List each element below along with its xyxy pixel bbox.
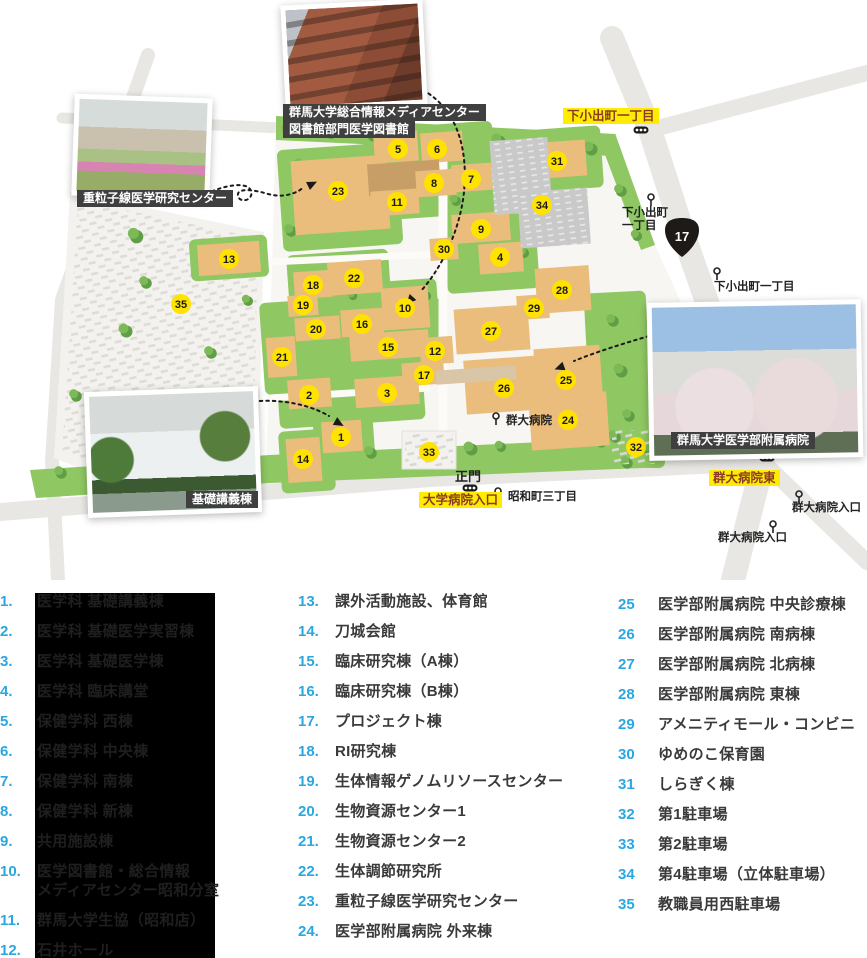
- svg-text:下小出町一丁目: 下小出町一丁目: [714, 279, 795, 293]
- legend-item-label: 臨床研究棟（B棟）: [335, 682, 469, 701]
- traffic-light-icon: [463, 485, 478, 492]
- map-marker-21: 21: [272, 347, 292, 367]
- map-marker-23: 23: [328, 181, 348, 201]
- svg-text:18: 18: [307, 280, 319, 292]
- svg-text:5: 5: [395, 144, 401, 156]
- legend-item-19: 19.生体情報ゲノムリソースセンター: [298, 772, 610, 791]
- svg-text:34: 34: [536, 200, 549, 212]
- map-marker-15: 15: [378, 337, 398, 357]
- svg-text:23: 23: [332, 186, 344, 198]
- legend-item-label: 教職員用西駐車場: [658, 895, 780, 914]
- svg-text:15: 15: [382, 342, 394, 354]
- legend-item-number: 26: [618, 625, 658, 644]
- legend-item-35: 35教職員用西駐車場: [618, 895, 867, 914]
- legend-item-23: 23.重粒子線医学研究センター: [298, 892, 610, 911]
- map-marker-17: 17: [414, 365, 434, 385]
- legend-item-number: 1.: [0, 592, 37, 611]
- legend-item-7: 7.保健学科 南棟: [0, 772, 292, 791]
- building-legend: 1.医学科 基礎講義棟2.医学科 基礎医学実習棟3.医学科 基礎医学棟4.医学科…: [0, 586, 867, 958]
- legend-item-number: 18.: [298, 742, 335, 761]
- legend-item-number: 3.: [0, 652, 37, 671]
- legend-item-number: 14.: [298, 622, 335, 641]
- svg-text:33: 33: [423, 447, 435, 459]
- legend-item-11: 11.群馬大学生協（昭和店）: [0, 911, 292, 930]
- legend-item-label: 医学部附属病院 中央診療棟: [658, 595, 846, 614]
- legend-item-number: 30: [618, 745, 658, 764]
- legend-item-number: 25: [618, 595, 658, 614]
- legend-item-number: 28: [618, 685, 658, 704]
- photo-caption: 群馬大学総合情報メディアセンター: [283, 104, 486, 121]
- map-marker-14: 14: [293, 449, 313, 469]
- legend-item-number: 20.: [298, 802, 335, 821]
- svg-text:1: 1: [338, 432, 344, 444]
- legend-item-label: 共用施設棟: [37, 832, 114, 851]
- svg-text:22: 22: [348, 273, 360, 285]
- photo-media-center-library: [280, 0, 427, 112]
- svg-text:29: 29: [528, 303, 540, 315]
- legend-item-number: 19.: [298, 772, 335, 791]
- map-marker-35: 35: [171, 294, 191, 314]
- legend-item-18: 18.RI研究棟: [298, 742, 610, 761]
- legend-item-9: 9.共用施設棟: [0, 832, 292, 851]
- svg-text:24: 24: [562, 415, 575, 427]
- map-marker-12: 12: [425, 341, 445, 361]
- legend-item-4: 4.医学科 臨床講堂: [0, 682, 292, 701]
- legend-item-21: 21.生物資源センター2: [298, 832, 610, 851]
- svg-text:14: 14: [297, 454, 310, 466]
- map-marker-33: 33: [419, 442, 439, 462]
- legend-item-29: 29アメニティモール・コンビニ: [618, 715, 867, 734]
- legend-item-label: 医学部附属病院 南病棟: [658, 625, 815, 644]
- svg-text:6: 6: [434, 144, 440, 156]
- svg-text:2: 2: [306, 390, 312, 402]
- legend-item-number: 31: [618, 775, 658, 794]
- legend-item-number: 24.: [298, 922, 335, 941]
- legend-item-number: 27: [618, 655, 658, 674]
- legend-item-label: 医学部附属病院 東棟: [658, 685, 800, 704]
- legend-item-number: 23.: [298, 892, 335, 911]
- map-marker-31: 31: [547, 151, 567, 171]
- svg-text:7: 7: [468, 174, 474, 186]
- svg-text:20: 20: [310, 324, 322, 336]
- map-marker-5: 5: [388, 139, 408, 159]
- legend-item-label: 生物資源センター1: [335, 802, 466, 821]
- road-name-label: 大学病院入口: [419, 492, 502, 508]
- legend-item-number: 33: [618, 835, 658, 854]
- svg-text:3: 3: [384, 388, 390, 400]
- map-marker-26: 26: [494, 378, 514, 398]
- legend-item-12: 12.石井ホール: [0, 941, 292, 958]
- legend-item-label: 臨床研究棟（A棟）: [335, 652, 469, 671]
- legend-item-label: 生体情報ゲノムリソースセンター: [335, 772, 563, 791]
- legend-item-31: 31しらぎく棟: [618, 775, 867, 794]
- svg-text:13: 13: [223, 254, 235, 266]
- legend-item-8: 8.保健学科 新棟: [0, 802, 292, 821]
- map-marker-10: 10: [395, 298, 415, 318]
- svg-text:19: 19: [297, 300, 309, 312]
- legend-item-15: 15.臨床研究棟（A棟）: [298, 652, 610, 671]
- photo-caption: 基礎講義棟: [186, 491, 258, 508]
- legend-item-number: 10.: [0, 862, 37, 881]
- traffic-light-icon: [634, 127, 649, 134]
- legend-item-label: RI研究棟: [335, 742, 397, 761]
- legend-item-26: 26医学部附属病院 南病棟: [618, 625, 867, 644]
- legend-item-number: 9.: [0, 832, 37, 851]
- legend-item-27: 27医学部附属病院 北病棟: [618, 655, 867, 674]
- legend-item-32: 32第1駐車場: [618, 805, 867, 824]
- svg-text:8: 8: [431, 178, 437, 190]
- svg-text:25: 25: [560, 375, 572, 387]
- legend-item-label: 保健学科 新棟: [37, 802, 133, 821]
- legend-item-24: 24.医学部附属病院 外来棟: [298, 922, 610, 941]
- map-marker-4: 4: [490, 247, 510, 267]
- svg-text:群大病院入口: 群大病院入口: [717, 530, 787, 544]
- map-marker-29: 29: [524, 298, 544, 318]
- legend-item-2: 2.医学科 基礎医学実習棟: [0, 622, 292, 641]
- legend-item-label: 医学科 臨床講堂: [37, 682, 149, 701]
- svg-text:11: 11: [391, 197, 403, 209]
- svg-text:群大病院: 群大病院: [505, 413, 552, 427]
- legend-item-13: 13.課外活動施設、体育館: [298, 592, 610, 611]
- legend-item-label: アメニティモール・コンビニ: [658, 715, 855, 734]
- map-marker-13: 13: [219, 249, 239, 269]
- map-marker-6: 6: [427, 139, 447, 159]
- legend-item-label: 医学部附属病院 北病棟: [658, 655, 815, 674]
- legend-item-number: 2.: [0, 622, 37, 641]
- legend-item-label: 刀城会館: [335, 622, 396, 641]
- legend-item-label: 医学科 基礎講義棟: [37, 592, 164, 611]
- legend-item-number: 32: [618, 805, 658, 824]
- photo-caption: 図書館部門医学図書館: [283, 121, 415, 138]
- legend-item-number: 21.: [298, 832, 335, 851]
- map-marker-8: 8: [424, 173, 444, 193]
- photo-caption: 重粒子線医学研究センター: [77, 190, 233, 207]
- legend-item-number: 35: [618, 895, 658, 914]
- svg-text:4: 4: [497, 252, 504, 264]
- photo-library-image: [286, 4, 423, 107]
- legend-item-28: 28医学部附属病院 東棟: [618, 685, 867, 704]
- campus-map-page: 17 下小出町一丁目下小出町一丁目群大病院昭和町三丁目群大病院入口群大病院入口正…: [0, 0, 867, 958]
- svg-text:9: 9: [478, 224, 484, 236]
- legend-item-label: 石井ホール: [37, 941, 114, 958]
- svg-text:10: 10: [399, 303, 411, 315]
- map-marker-1: 1: [331, 427, 351, 447]
- road-name-label: 群大病院東: [709, 470, 780, 486]
- map-marker-32: 32: [626, 437, 646, 457]
- legend-item-number: 13.: [298, 592, 335, 611]
- svg-text:群大病院入口: 群大病院入口: [791, 500, 861, 514]
- svg-text:12: 12: [429, 346, 441, 358]
- legend-item-label: 重粒子線医学研究センター: [335, 892, 519, 911]
- legend-item-label: 医学科 基礎医学棟: [37, 652, 164, 671]
- legend-item-label: 第2駐車場: [658, 835, 728, 854]
- legend-item-1: 1.医学科 基礎講義棟: [0, 592, 292, 611]
- map-marker-28: 28: [552, 280, 572, 300]
- map-marker-24: 24: [558, 410, 578, 430]
- bus-stop-label: 下小出町一丁目: [714, 268, 795, 293]
- legend-item-number: 7.: [0, 772, 37, 791]
- svg-text:27: 27: [485, 326, 497, 338]
- legend-item-number: 29: [618, 715, 658, 734]
- legend-item-20: 20.生物資源センター1: [298, 802, 610, 821]
- legend-item-label: 生体調節研究所: [335, 862, 442, 881]
- legend-item-number: 34: [618, 865, 658, 884]
- legend-item-10: 10.医学図書館・総合情報 メディアセンター昭和分室: [0, 862, 292, 900]
- svg-text:21: 21: [276, 352, 288, 364]
- legend-item-number: 17.: [298, 712, 335, 731]
- legend-item-30: 30ゆめのこ保育園: [618, 745, 867, 764]
- map-marker-25: 25: [556, 370, 576, 390]
- map-marker-34: 34: [532, 195, 552, 215]
- svg-text:35: 35: [175, 299, 187, 311]
- legend-column-3: 25医学部附属病院 中央診療棟26医学部附属病院 南病棟27医学部附属病院 北病…: [618, 592, 867, 925]
- photo-heavy-ion-center: [71, 94, 212, 201]
- legend-item-label: 課外活動施設、体育館: [335, 592, 488, 611]
- legend-item-label: 第4駐車場（立体駐車場）: [658, 865, 835, 884]
- legend-item-number: 12.: [0, 941, 37, 958]
- legend-item-14: 14.刀城会館: [298, 622, 610, 641]
- legend-item-number: 11.: [0, 911, 37, 930]
- svg-text:31: 31: [551, 156, 563, 168]
- legend-item-5: 5.保健学科 西棟: [0, 712, 292, 731]
- map-marker-11: 11: [387, 192, 407, 212]
- bus-stop-label: 群大病院入口: [791, 491, 861, 514]
- map-marker-7: 7: [461, 169, 481, 189]
- legend-item-label: 群馬大学生協（昭和店）: [37, 911, 205, 930]
- legend-item-16: 16.臨床研究棟（B棟）: [298, 682, 610, 701]
- photo-heavy-ion-image: [76, 99, 207, 195]
- map-marker-30: 30: [434, 239, 454, 259]
- legend-item-label: ゆめのこ保育園: [658, 745, 765, 764]
- map-marker-18: 18: [303, 275, 323, 295]
- bus-stop-label: 昭和町三丁目: [495, 488, 577, 503]
- svg-text:28: 28: [556, 285, 568, 297]
- legend-column-1: 1.医学科 基礎講義棟2.医学科 基礎医学実習棟3.医学科 基礎医学棟4.医学科…: [0, 592, 292, 958]
- map-marker-27: 27: [481, 321, 501, 341]
- legend-item-label: 医学部附属病院 外来棟: [335, 922, 492, 941]
- road-name-label: 下小出町一丁目: [563, 108, 659, 124]
- map-marker-22: 22: [344, 268, 364, 288]
- route-number: 17: [675, 229, 689, 244]
- svg-text:下小出町一丁目: 下小出町一丁目: [622, 205, 668, 232]
- legend-item-number: 22.: [298, 862, 335, 881]
- legend-item-label: 生物資源センター2: [335, 832, 466, 851]
- legend-item-22: 22.生体調節研究所: [298, 862, 610, 881]
- svg-text:30: 30: [438, 244, 450, 256]
- map-marker-20: 20: [306, 319, 326, 339]
- svg-text:32: 32: [630, 442, 642, 454]
- legend-item-number: 4.: [0, 682, 37, 701]
- photo-caption: 群馬大学医学部附属病院: [671, 432, 815, 449]
- legend-item-label: 保健学科 南棟: [37, 772, 133, 791]
- legend-item-number: 15.: [298, 652, 335, 671]
- legend-item-25: 25医学部附属病院 中央診療棟: [618, 595, 867, 614]
- legend-item-label: 保健学科 中央棟: [37, 742, 149, 761]
- gate-label: 正門: [455, 469, 481, 484]
- legend-column-2: 13.課外活動施設、体育館14.刀城会館15.臨床研究棟（A棟）16.臨床研究棟…: [298, 592, 610, 952]
- svg-text:26: 26: [498, 383, 510, 395]
- legend-item-label: 第1駐車場: [658, 805, 728, 824]
- map-marker-3: 3: [377, 383, 397, 403]
- svg-text:16: 16: [356, 319, 368, 331]
- legend-item-label: しらぎく棟: [658, 775, 735, 794]
- legend-item-label: 医学図書館・総合情報 メディアセンター昭和分室: [37, 862, 219, 900]
- legend-item-3: 3.医学科 基礎医学棟: [0, 652, 292, 671]
- legend-item-34: 34第4駐車場（立体駐車場）: [618, 865, 867, 884]
- svg-text:昭和町三丁目: 昭和町三丁目: [508, 489, 577, 503]
- legend-item-6: 6.保健学科 中央棟: [0, 742, 292, 761]
- legend-item-label: 医学科 基礎医学実習棟: [37, 622, 194, 641]
- svg-text:17: 17: [418, 370, 430, 382]
- legend-item-17: 17.プロジェクト棟: [298, 712, 610, 731]
- legend-item-number: 16.: [298, 682, 335, 701]
- legend-item-number: 6.: [0, 742, 37, 761]
- legend-item-label: 保健学科 西棟: [37, 712, 133, 731]
- legend-item-label: プロジェクト棟: [335, 712, 442, 731]
- map-marker-2: 2: [299, 385, 319, 405]
- map-marker-16: 16: [352, 314, 372, 334]
- map-marker-9: 9: [471, 219, 491, 239]
- map-marker-19: 19: [293, 295, 313, 315]
- legend-item-number: 5.: [0, 712, 37, 731]
- legend-item-number: 8.: [0, 802, 37, 821]
- svg-text:正門: 正門: [455, 469, 481, 484]
- legend-item-33: 33第2駐車場: [618, 835, 867, 854]
